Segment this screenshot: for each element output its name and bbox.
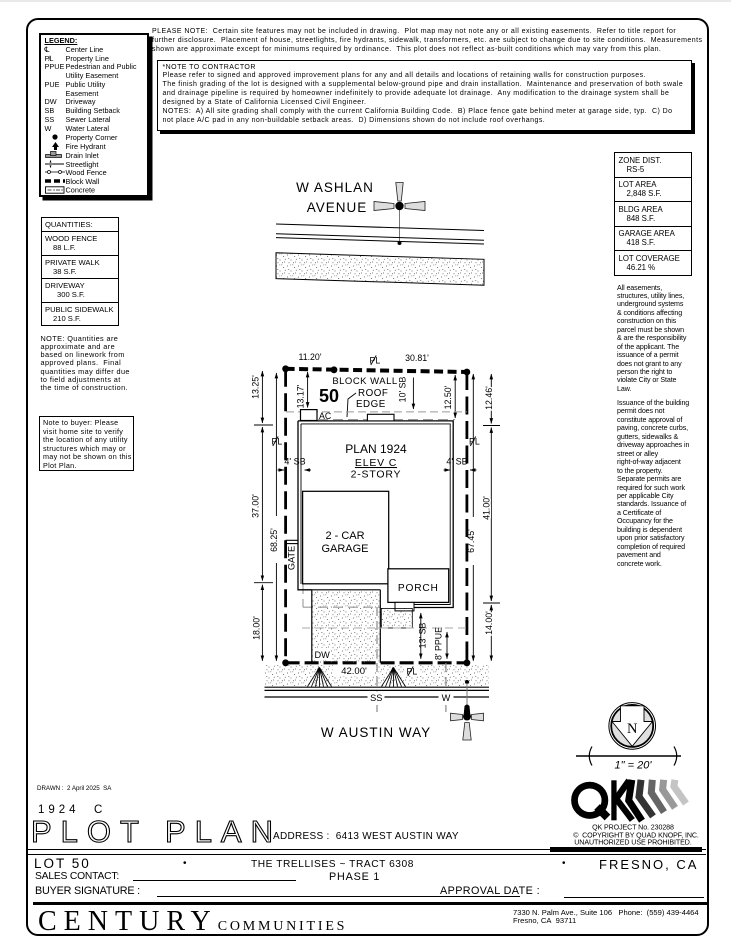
svg-text:ELEV C: ELEV C <box>355 457 397 469</box>
svg-text:EDGE: EDGE <box>356 399 386 410</box>
svg-text:68.25': 68.25' <box>269 528 279 552</box>
svg-text:30.81': 30.81' <box>405 353 429 363</box>
svg-text:UNAUTHORIZED USE PROHIBITED.: UNAUTHORIZED USE PROHIBITED. <box>574 838 692 846</box>
svg-text:BLOCK WALL: BLOCK WALL <box>332 376 397 387</box>
svg-text:SS: SS <box>370 693 382 703</box>
svg-text:8' PPUE: 8' PPUE <box>434 627 444 660</box>
svg-text:13.17': 13.17' <box>296 384 306 408</box>
svg-text:13.25': 13.25' <box>251 375 261 399</box>
svg-text:AVENUE: AVENUE <box>307 200 368 215</box>
svg-text:4' SB: 4' SB <box>446 457 467 467</box>
svg-text:2-STORY: 2-STORY <box>351 469 402 481</box>
svg-text:14.00': 14.00' <box>484 611 494 635</box>
svg-text:PORCH: PORCH <box>398 583 439 594</box>
svg-text:GATE: GATE <box>287 546 297 570</box>
svg-text:N: N <box>627 721 638 737</box>
svg-text:4' SB: 4' SB <box>284 457 305 467</box>
svg-text:W: W <box>442 693 451 703</box>
svg-text:AC: AC <box>319 411 332 421</box>
svg-text:37.00': 37.00' <box>251 494 261 518</box>
svg-text:11.20': 11.20' <box>298 352 321 362</box>
svg-text:50: 50 <box>319 386 339 406</box>
svg-text:QK PROJECT No. 230288: QK PROJECT No. 230288 <box>592 824 674 832</box>
svg-text:ROOF: ROOF <box>358 388 388 399</box>
svg-text:67.45': 67.45' <box>466 529 476 553</box>
svg-text:12.50': 12.50' <box>443 385 453 409</box>
svg-text:10' SB: 10' SB <box>398 377 408 403</box>
svg-text:PLAN 1924: PLAN 1924 <box>345 442 407 456</box>
svg-text:42.00': 42.00' <box>341 666 367 677</box>
svg-text:1" = 20': 1" = 20' <box>615 760 653 772</box>
svg-text:W ASHLAN: W ASHLAN <box>296 180 374 195</box>
svg-text:18.00': 18.00' <box>252 616 262 640</box>
svg-text:2 - CAR: 2 - CAR <box>325 530 364 542</box>
svg-text:41.00': 41.00' <box>482 496 492 520</box>
svg-text:12.46': 12.46' <box>484 386 494 410</box>
svg-text:W AUSTIN WAY: W AUSTIN WAY <box>321 725 431 740</box>
svg-text:DW: DW <box>315 650 331 660</box>
svg-text:GARAGE: GARAGE <box>321 543 368 555</box>
svg-text:13' SB: 13' SB <box>418 623 428 649</box>
